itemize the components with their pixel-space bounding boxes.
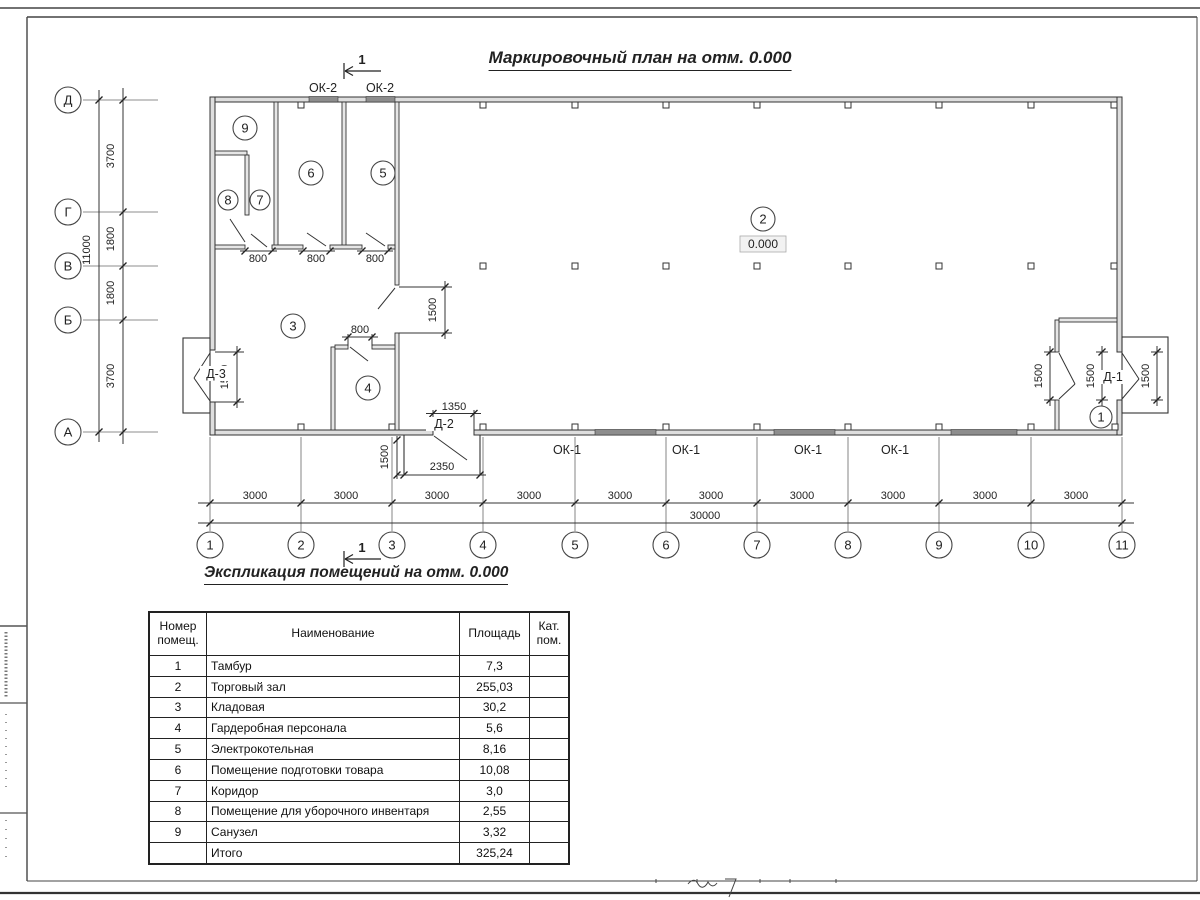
room-number-cell: 1 [149, 656, 207, 677]
table-row: 9 Санузел 3,32 [149, 822, 569, 843]
dim-3000: 3000 [973, 490, 997, 502]
dimension-lines [99, 88, 1163, 523]
axis-5: 5 [571, 538, 578, 553]
dim-800: 800 [351, 324, 369, 336]
schedule-title: Экспликация помещений на отм. 0.000 [204, 564, 508, 585]
room-area-cell: 30,2 [460, 697, 530, 718]
room-area-cell: 3,0 [460, 780, 530, 801]
dim-3700: 3700 [105, 144, 117, 168]
door-label-d2: Д-2 [434, 417, 454, 431]
room-bubbles [218, 116, 1112, 428]
room-name-cell: Электрокотельная [207, 739, 460, 760]
room-number-cell: 4 [149, 718, 207, 739]
room-number-cell: 8 [149, 801, 207, 822]
room-number-cell: 9 [149, 822, 207, 843]
axis-v: В [64, 259, 73, 274]
room-area-cell: 2,55 [460, 801, 530, 822]
room-cat-cell [530, 843, 570, 864]
room-number-5: 5 [379, 166, 386, 181]
axis-2: 2 [297, 538, 304, 553]
door-label-d3: Д-3 [206, 367, 226, 381]
room-number-8: 8 [224, 193, 231, 208]
room-number-3: 3 [289, 319, 296, 334]
axis-6: 6 [662, 538, 669, 553]
section-number: 1 [358, 52, 365, 67]
room-name-cell: Торговый зал [207, 676, 460, 697]
axis-8: 8 [844, 538, 851, 553]
dim-3000: 3000 [699, 490, 723, 502]
axis-9: 9 [935, 538, 942, 553]
room-number-9: 9 [241, 121, 248, 136]
window-label-ok2-2: ОК-2 [366, 81, 394, 95]
door-label-d1: Д-1 [1103, 370, 1123, 384]
room-name-cell: Санузел [207, 822, 460, 843]
door-labels: Д-3 Д-2 Д-1 [200, 366, 1130, 431]
axis-11: 11 [1115, 538, 1129, 553]
room-name-cell: Помещение подготовки товара [207, 759, 460, 780]
room-cat-cell [530, 822, 570, 843]
dim-800: 800 [307, 253, 325, 265]
room-name-cell: Коридор [207, 780, 460, 801]
room-area-cell: 3,32 [460, 822, 530, 843]
header-room-area: Площадь [460, 612, 530, 656]
room-number-cell [149, 843, 207, 864]
room-number-2: 2 [759, 212, 766, 227]
axis-d: Д [64, 93, 73, 108]
dim-2350: 2350 [430, 461, 454, 473]
dimension-ticks [96, 97, 1161, 527]
drawing-sheet: ОК-2 ОК-2 ОК-1 ОК-1 ОК-1 ОК-1 [0, 0, 1200, 900]
room-cat-cell [530, 759, 570, 780]
room-area-cell: 7,3 [460, 656, 530, 677]
dim-3000: 3000 [608, 490, 632, 502]
room-number-4: 4 [364, 381, 371, 396]
room-cat-cell [530, 801, 570, 822]
room-cat-cell [530, 697, 570, 718]
table-header-row: Номер помещ. Наименование Площадь Кат. п… [149, 612, 569, 656]
table-row: 4 Гардеробная персонала 5,6 [149, 718, 569, 739]
table-row: 6 Помещение подготовки товара 10,08 [149, 759, 569, 780]
dim-3700: 3700 [105, 364, 117, 388]
room-area-cell: 255,03 [460, 676, 530, 697]
dim-3000: 3000 [1064, 490, 1088, 502]
total-area-cell: 325,24 [460, 843, 530, 864]
dim-1800: 1800 [105, 227, 117, 251]
room-number-cell: 6 [149, 759, 207, 780]
dim-3000: 3000 [243, 490, 267, 502]
axis-3: 3 [388, 538, 395, 553]
dim-1800: 1800 [105, 281, 117, 305]
room-name-cell: Помещение для уборочного инвентаря [207, 801, 460, 822]
axis-b: Б [64, 313, 73, 328]
dim-800: 800 [366, 253, 384, 265]
window-label-ok1-3: ОК-1 [794, 443, 822, 457]
axis-g: Г [64, 205, 71, 220]
room-name-cell: Гардеробная персонала [207, 718, 460, 739]
table-row: 5 Электрокотельная 8,16 [149, 739, 569, 760]
room-cat-cell [530, 780, 570, 801]
table-row: 8 Помещение для уборочного инвентаря 2,5… [149, 801, 569, 822]
columns [298, 102, 1118, 430]
table-total-row: Итого 325,24 [149, 843, 569, 864]
room-number-7: 7 [256, 193, 263, 208]
room-cat-cell [530, 676, 570, 697]
header-room-name: Наименование [207, 612, 460, 656]
dim-3000: 3000 [517, 490, 541, 502]
plan-title: Маркировочный план на отм. 0.000 [489, 48, 792, 71]
axis-4: 4 [479, 538, 486, 553]
table-row: 7 Коридор 3,0 [149, 780, 569, 801]
room-cat-cell [530, 718, 570, 739]
room-area-cell: 8,16 [460, 739, 530, 760]
room-cat-cell [530, 739, 570, 760]
dim-3000: 3000 [790, 490, 814, 502]
total-label-cell: Итого [207, 843, 460, 864]
room-number-cell: 5 [149, 739, 207, 760]
axis-a: А [64, 425, 73, 440]
room-name-cell: Кладовая [207, 697, 460, 718]
dimension-texts: 3000 3000 3000 3000 3000 3000 3000 3000 … [81, 144, 1152, 522]
header-room-number: Номер помещ. [149, 612, 207, 656]
room-schedule-table: Номер помещ. Наименование Площадь Кат. п… [148, 611, 570, 865]
dim-800: 800 [249, 253, 267, 265]
window-label-ok1-4: ОК-1 [881, 443, 909, 457]
dim-1350: 1350 [442, 401, 466, 413]
table-row: 3 Кладовая 30,2 [149, 697, 569, 718]
room-number-1: 1 [1097, 410, 1104, 425]
section-number: 1 [358, 540, 365, 555]
dim-3000: 3000 [425, 490, 449, 502]
dim-3000: 3000 [334, 490, 358, 502]
dim-1500: 1500 [427, 298, 439, 322]
axis-10: 10 [1024, 538, 1038, 553]
dim-11000: 11000 [81, 235, 93, 265]
room-cat-cell [530, 656, 570, 677]
window-label-ok1-1: ОК-1 [553, 443, 581, 457]
window-label-ok2-1: ОК-2 [309, 81, 337, 95]
window-label-ok1-2: ОК-1 [672, 443, 700, 457]
table-row: 2 Торговый зал 255,03 [149, 676, 569, 697]
dim-30000: 30000 [690, 510, 721, 522]
table-row: 1 Тамбур 7,3 [149, 656, 569, 677]
room-number-cell: 3 [149, 697, 207, 718]
dim-1500: 1500 [1140, 364, 1152, 388]
axis-7: 7 [753, 538, 760, 553]
room-area-cell: 5,6 [460, 718, 530, 739]
room-name-cell: Тамбур [207, 656, 460, 677]
axis-lines [83, 100, 1122, 531]
dim-1500: 1500 [1033, 364, 1045, 388]
dim-1500: 1500 [1085, 364, 1097, 388]
stamp-strip [0, 626, 27, 858]
signature-scribble [656, 879, 836, 897]
room-number-cell: 7 [149, 780, 207, 801]
dim-1500: 1500 [379, 445, 391, 469]
room-area-cell: 10,08 [460, 759, 530, 780]
elevation-value: 0.000 [748, 237, 778, 251]
room-number-6: 6 [307, 166, 314, 181]
axis-1: 1 [206, 538, 213, 553]
room-number-cell: 2 [149, 676, 207, 697]
header-room-cat: Кат. пом. [530, 612, 570, 656]
dim-3000: 3000 [881, 490, 905, 502]
